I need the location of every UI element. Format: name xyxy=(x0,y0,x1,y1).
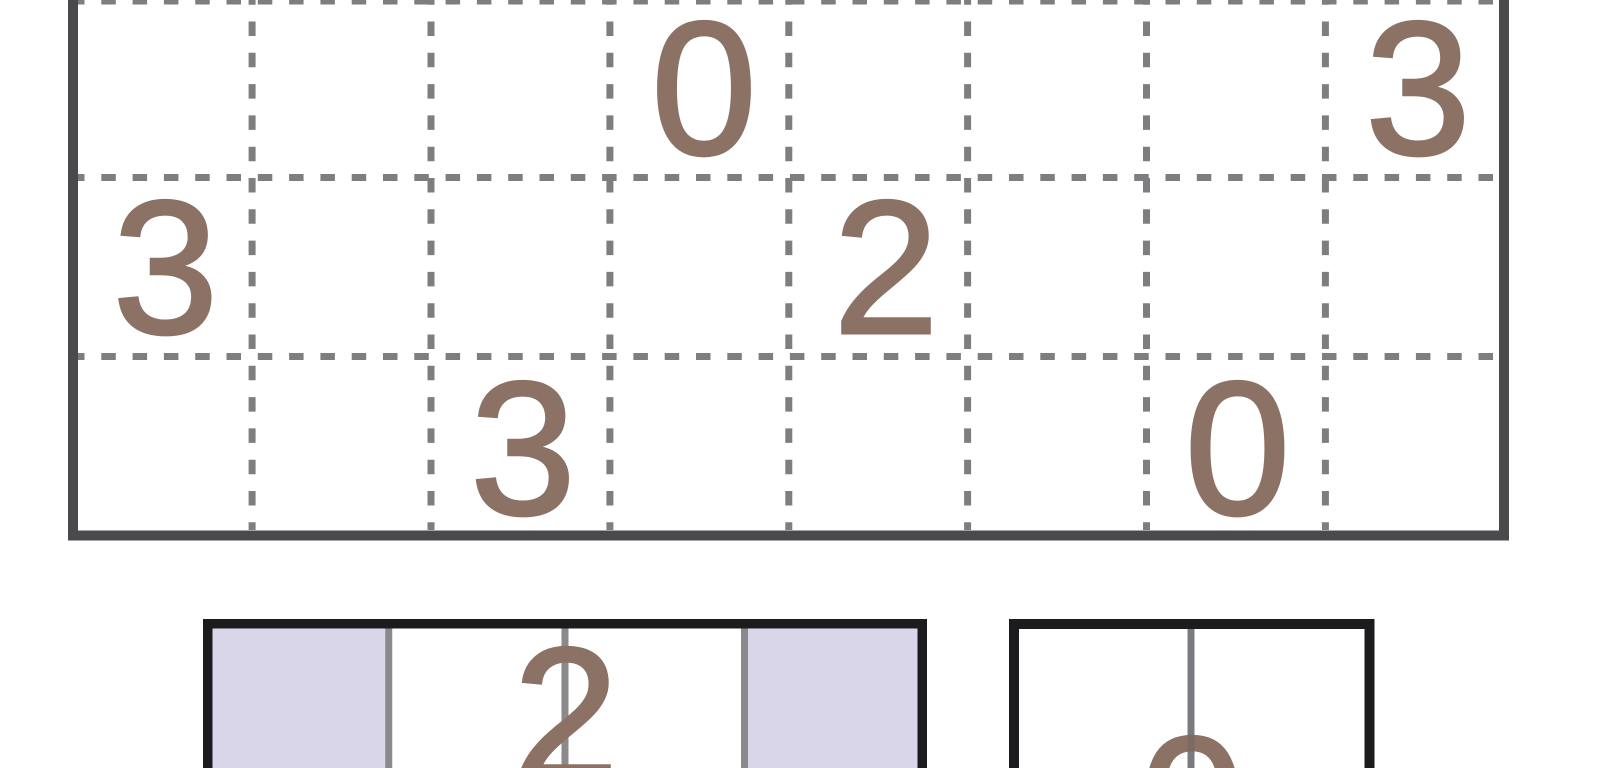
svg-text:3: 3 xyxy=(113,162,219,374)
svg-text:3: 3 xyxy=(1365,0,1471,195)
svg-text:0: 0 xyxy=(651,0,757,195)
svg-text:2: 2 xyxy=(513,609,619,768)
svg-text:3: 3 xyxy=(470,343,576,555)
svg-text:2: 2 xyxy=(833,162,939,374)
svg-text:0: 0 xyxy=(1185,343,1291,555)
